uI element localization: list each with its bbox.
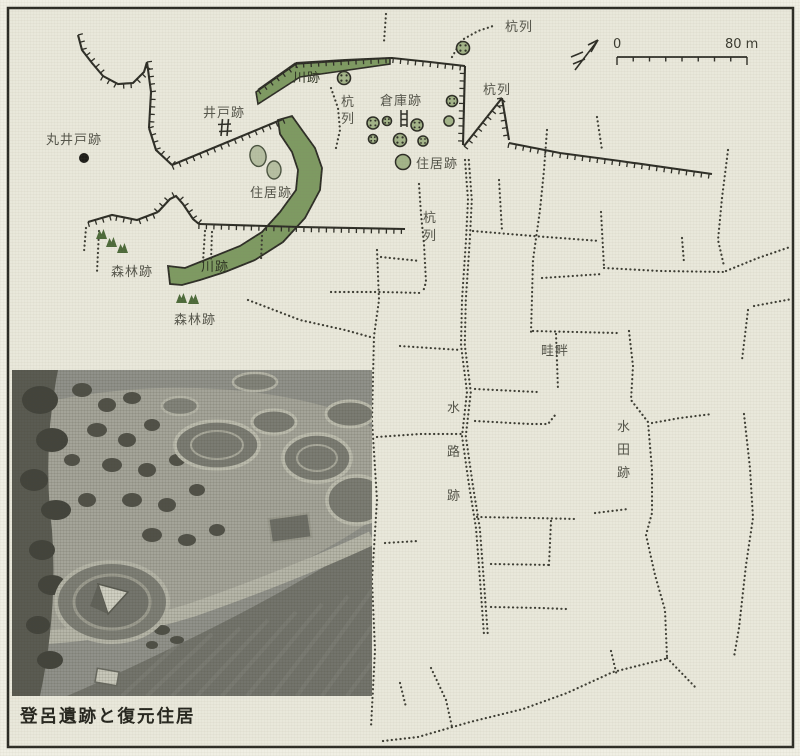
dwelling-circle [444,116,454,126]
label-shinrin-ato-1: 森林跡 [111,264,153,280]
label-kuiretsu-top: 杭列 [505,20,533,35]
reconstructed-hut [56,562,168,642]
dwelling-oval [267,161,281,179]
warehouse-circle [418,136,428,146]
label-suiden-ato: 水 [617,420,630,435]
round-well-dot [79,153,89,163]
label-ido-ato: 井戸跡 [203,105,245,121]
scale-end-label: 80 m [725,37,758,52]
aerial-photo [12,370,372,696]
warehouse-circle [367,117,379,129]
toro-site-map-figure: 080 m杭列杭列杭列杭列川跡川跡井戸跡丸井戸跡住居跡住居跡倉庫跡森林跡森林跡畦… [0,0,800,756]
label-jukyo-ato-right: 住居跡 [416,156,458,172]
label-kuiretsu-center: 杭 [341,95,354,110]
label-suiro-ato: 路 [447,444,460,460]
label-suiden-ato: 田 [617,443,630,458]
label-suiro-ato: 水 [447,401,460,416]
warehouse-circle [383,117,392,126]
dwelling-circle [396,155,411,170]
photo-caption: 登呂遺跡と復元住居 [20,703,196,728]
aerial-photo-image [12,370,372,696]
label-jukyo-ato-left: 住居跡 [250,185,292,201]
label-kawa-ato-upper: 川跡 [293,70,321,86]
warehouse-circle [411,119,423,131]
label-kuiretsu-middle: 列 [423,229,436,244]
label-kawa-ato-lower: 川跡 [201,259,229,275]
label-kuiretsu-middle: 杭 [423,211,436,226]
label-keihan: 畦畔 [541,344,569,359]
label-maru-ido-ato: 丸井戸跡 [46,132,102,148]
warehouse-circle [457,42,470,55]
label-suiden-ato: 跡 [617,465,630,481]
label-kuiretsu-upper-right: 杭列 [483,83,511,98]
warehouse-circle [447,96,458,107]
warehouse-circle [338,72,351,85]
label-kuiretsu-center: 列 [341,112,354,127]
warehouse-circle [369,135,378,144]
label-soko-ato: 倉庫跡 [380,93,422,109]
scale-start-label: 0 [613,37,621,52]
label-shinrin-ato-2: 森林跡 [174,312,216,328]
warehouse-circle [394,134,407,147]
label-suiro-ato: 跡 [447,488,460,504]
